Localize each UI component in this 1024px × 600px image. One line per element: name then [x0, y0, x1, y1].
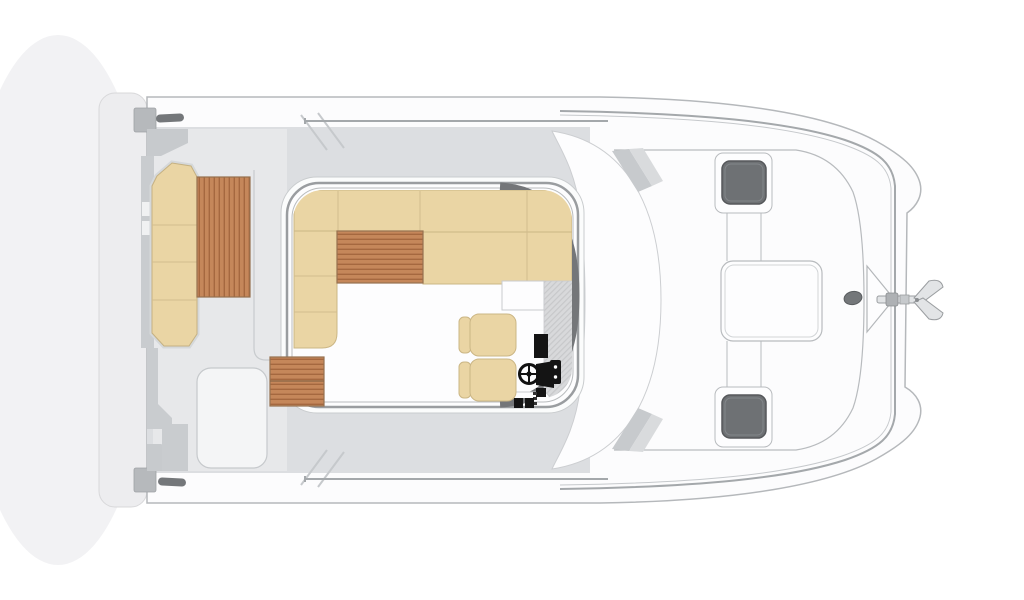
salon	[270, 177, 584, 413]
center-deck-locker	[721, 261, 822, 341]
helm-seat	[470, 359, 516, 401]
cockpit-table	[197, 177, 250, 297]
galley-counter-box	[502, 281, 544, 310]
stern-cleat-bottom	[158, 477, 186, 486]
boat-deck-plan	[0, 0, 1024, 600]
console-pod	[514, 398, 523, 408]
deck-plan-drawing	[0, 0, 1024, 600]
instrument-panel	[550, 360, 561, 384]
console-switch-box	[536, 388, 546, 397]
entry-steps	[270, 357, 324, 406]
deck-hatch-forward-bottom	[722, 395, 766, 438]
steering-wheel	[520, 365, 539, 384]
swim-platform	[99, 93, 147, 507]
stern-corner-block	[134, 468, 156, 492]
salon-table	[337, 231, 423, 283]
bow-roller	[886, 293, 898, 306]
transom-bench	[152, 163, 197, 346]
helm-seat-backrest	[459, 362, 471, 398]
helm-seat	[470, 314, 516, 356]
console-pod	[525, 398, 534, 408]
cockpit-locker-module	[197, 368, 267, 468]
stern-cleat-top	[156, 113, 184, 122]
deck-hatch-forward-top	[722, 161, 766, 204]
helm-seat-backrest	[459, 317, 471, 353]
stern-corner-block	[134, 108, 156, 132]
console-box	[534, 334, 548, 358]
